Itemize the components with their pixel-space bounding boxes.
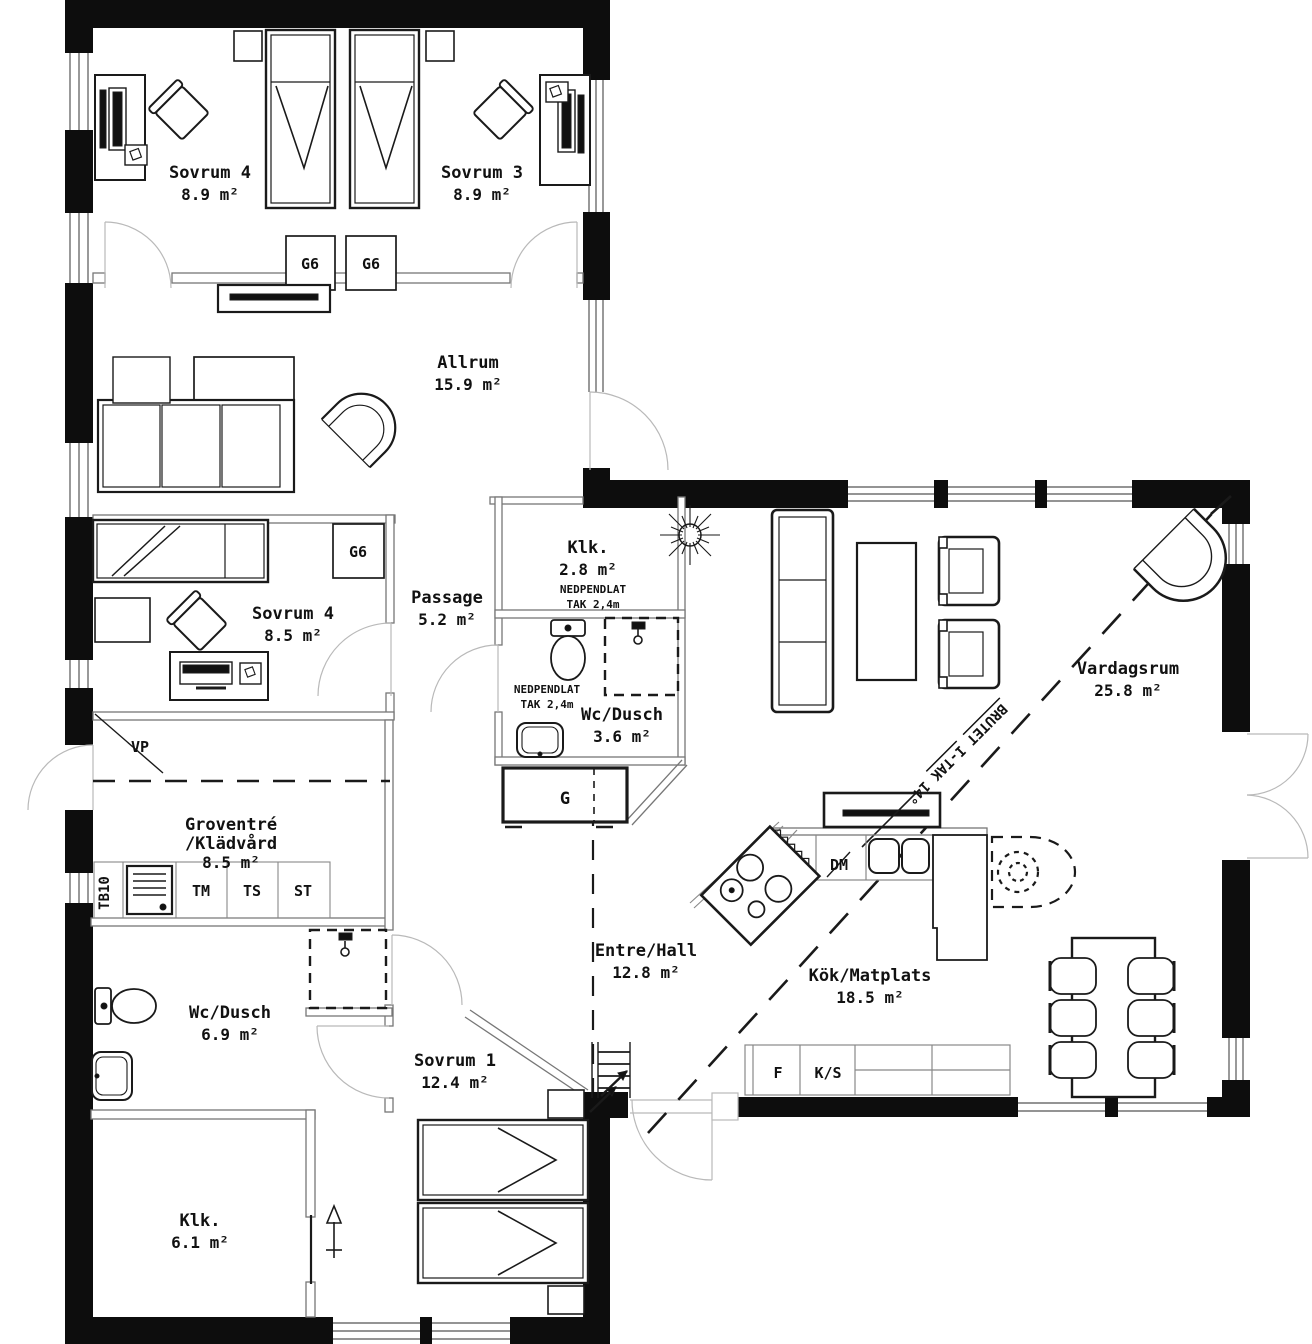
note-pendant: NEDPENDLAT xyxy=(514,683,581,696)
dm-label: DM xyxy=(830,856,848,874)
washbasin xyxy=(92,1052,132,1100)
room-label: Klk. xyxy=(180,1211,221,1231)
dining-chairs xyxy=(1050,958,1174,1078)
island-dashed xyxy=(992,837,1075,907)
room-area: 6.9 m² xyxy=(201,1025,259,1044)
nightstand xyxy=(548,1286,584,1314)
armchair xyxy=(939,537,999,605)
note-pendant: TAK 2,4m xyxy=(521,698,574,711)
desk xyxy=(95,75,147,180)
corner-cabinet xyxy=(933,835,987,960)
bed xyxy=(93,520,268,582)
room-label: Vardagsrum xyxy=(1077,659,1179,679)
vp-label: VP xyxy=(131,738,149,756)
room-label: Groventré xyxy=(185,815,277,835)
shower xyxy=(605,618,678,695)
st-label: ST xyxy=(294,882,312,900)
room-label: Kök/Matplats xyxy=(809,966,932,986)
wardrobe-label: G6 xyxy=(362,255,380,273)
room-area: 18.5 m² xyxy=(836,988,903,1007)
room-label: Wc/Dusch xyxy=(581,705,663,725)
washbasin xyxy=(517,723,563,757)
room-area: 15.9 m² xyxy=(434,375,501,394)
labels: Sovrum 4 8.9 m² Sovrum 3 8.9 m² G6 G6 Al… xyxy=(97,163,1179,1252)
bed xyxy=(266,30,335,208)
nightstand xyxy=(234,31,262,61)
room-area: 3.6 m² xyxy=(593,727,651,746)
bed xyxy=(418,1120,588,1200)
ts-label: TS xyxy=(243,882,261,900)
room-area: 12.4 m² xyxy=(421,1073,488,1092)
kitchen xyxy=(690,791,1174,1097)
note-pendant: TAK 2,4m xyxy=(567,598,620,611)
room-area: 6.1 m² xyxy=(171,1233,229,1252)
room-area: 8.9 m² xyxy=(181,185,239,204)
side-table xyxy=(194,357,294,400)
room-area: 25.8 m² xyxy=(1094,681,1161,700)
room-label: Sovrum 4 xyxy=(252,604,334,624)
room-area: 2.8 m² xyxy=(559,560,617,579)
tm-label: TM xyxy=(192,882,210,900)
wardrobe-label: G xyxy=(560,789,570,809)
nightstand xyxy=(95,598,150,642)
room-label: Passage xyxy=(411,588,483,608)
tb10-label: TB10 xyxy=(97,876,113,910)
plant xyxy=(660,505,720,565)
floorplan-svg: Sovrum 4 8.9 m² Sovrum 3 8.9 m² G6 G6 Al… xyxy=(0,0,1312,1344)
room-area: 8.5 m² xyxy=(202,853,260,872)
ks-label: K/S xyxy=(814,1064,841,1082)
room-label: Sovrum 4 xyxy=(169,163,251,183)
room-area: 12.8 m² xyxy=(612,963,679,982)
sofa xyxy=(772,510,833,712)
sideboard xyxy=(218,285,330,312)
note-pendant: NEDPENDLAT xyxy=(560,583,627,596)
room-label: Allrum xyxy=(437,353,498,373)
room-area: 8.5 m² xyxy=(264,626,322,645)
armchair xyxy=(939,620,999,688)
room-area: 8.9 m² xyxy=(453,185,511,204)
chair xyxy=(166,590,228,652)
wardrobe-label: G6 xyxy=(301,255,319,273)
desk xyxy=(540,75,590,185)
chair xyxy=(148,79,210,141)
sovrum4b-furniture xyxy=(93,520,384,700)
stove xyxy=(690,822,823,945)
toilet xyxy=(95,988,156,1024)
nightstand xyxy=(426,31,454,61)
floorplan-canvas: Sovrum 4 8.9 m² Sovrum 3 8.9 m² G6 G6 Al… xyxy=(0,0,1312,1344)
sink xyxy=(869,839,929,873)
washing-machine xyxy=(127,866,172,914)
curved-armchair xyxy=(322,380,410,468)
bed xyxy=(418,1203,588,1283)
room-label: Klk. xyxy=(568,538,609,558)
allrum-furniture xyxy=(98,357,409,492)
room-label: Sovrum 3 xyxy=(441,163,523,183)
north-arrow xyxy=(326,1206,342,1258)
room-area: 5.2 m² xyxy=(418,610,476,629)
toilet xyxy=(551,620,585,680)
room-label: /Klädvård xyxy=(185,832,277,854)
sovrum1-furniture xyxy=(311,1090,588,1314)
chair xyxy=(472,79,534,141)
f-label: F xyxy=(773,1064,782,1082)
nightstand xyxy=(548,1090,584,1118)
room-label: Sovrum 1 xyxy=(414,1051,496,1071)
desk xyxy=(170,652,268,700)
shower xyxy=(310,930,386,1008)
bed xyxy=(350,30,419,208)
wardrobe-label: G6 xyxy=(349,543,367,561)
room-label: Wc/Dusch xyxy=(189,1003,271,1023)
coffee-table xyxy=(857,543,916,680)
room-label: Entre/Hall xyxy=(595,941,697,961)
fridge-cabinets xyxy=(745,1045,1010,1095)
dining-set xyxy=(1050,938,1174,1097)
vp-diagonal xyxy=(95,714,163,773)
